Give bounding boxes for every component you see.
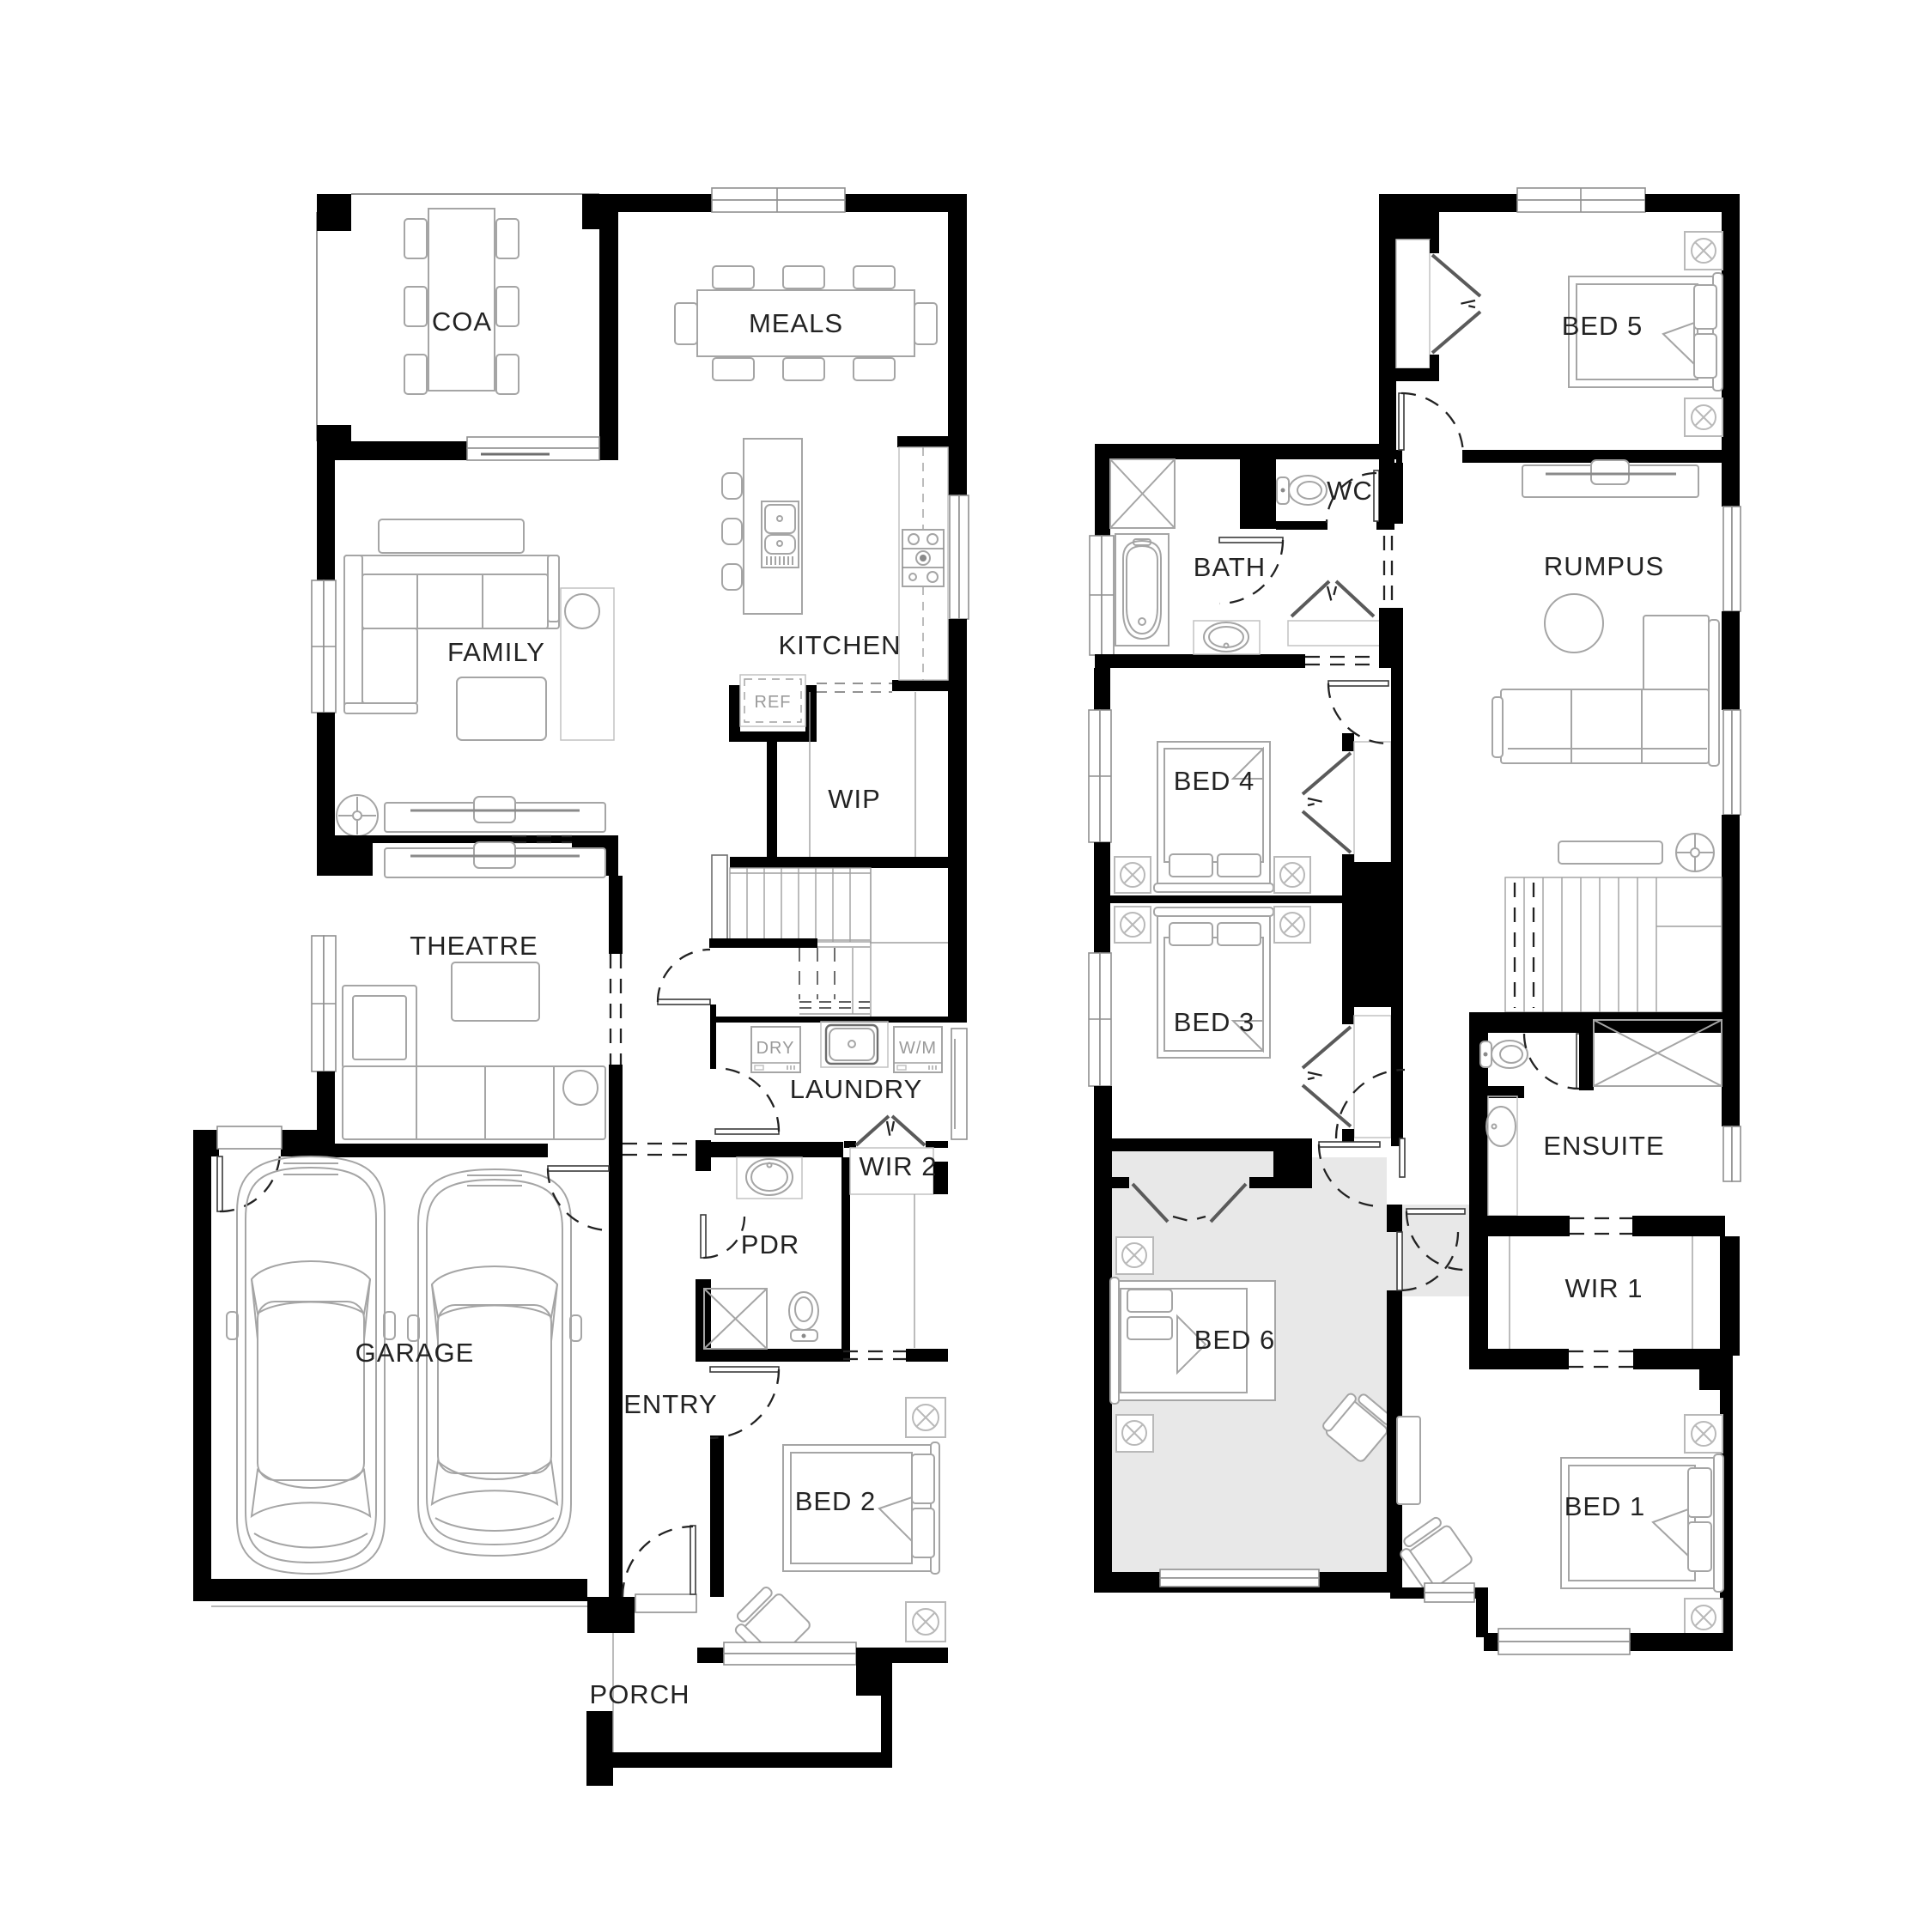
svg-text:DRY: DRY (756, 1039, 795, 1058)
svg-text:MEALS: MEALS (749, 308, 843, 338)
svg-text:RUMPUS: RUMPUS (1544, 551, 1664, 581)
svg-text:WC: WC (1327, 476, 1373, 506)
svg-text:BATH: BATH (1194, 552, 1266, 582)
svg-text:COA: COA (432, 307, 492, 337)
svg-text:BED 6: BED 6 (1194, 1325, 1276, 1355)
svg-text:BED 1: BED 1 (1564, 1491, 1646, 1521)
svg-text:PORCH: PORCH (590, 1679, 690, 1709)
svg-text:BED 4: BED 4 (1174, 766, 1255, 796)
svg-text:GARAGE: GARAGE (355, 1338, 475, 1368)
svg-text:BED 5: BED 5 (1562, 311, 1643, 341)
svg-text:PDR: PDR (741, 1229, 799, 1259)
svg-text:BED 2: BED 2 (795, 1486, 877, 1516)
svg-text:FAMILY: FAMILY (447, 637, 545, 667)
svg-text:KITCHEN: KITCHEN (778, 630, 901, 660)
svg-text:LAUNDRY: LAUNDRY (790, 1074, 923, 1104)
svg-text:WIR 2: WIR 2 (859, 1151, 937, 1181)
svg-text:THEATRE: THEATRE (410, 931, 538, 961)
svg-text:ENSUITE: ENSUITE (1543, 1131, 1664, 1161)
svg-text:REF: REF (755, 693, 792, 712)
svg-text:WIR 1: WIR 1 (1564, 1273, 1643, 1303)
svg-text:BED 3: BED 3 (1174, 1007, 1255, 1037)
svg-text:ENTRY: ENTRY (623, 1389, 718, 1419)
svg-text:W/M: W/M (899, 1039, 937, 1058)
svg-text:WIP: WIP (828, 784, 881, 814)
